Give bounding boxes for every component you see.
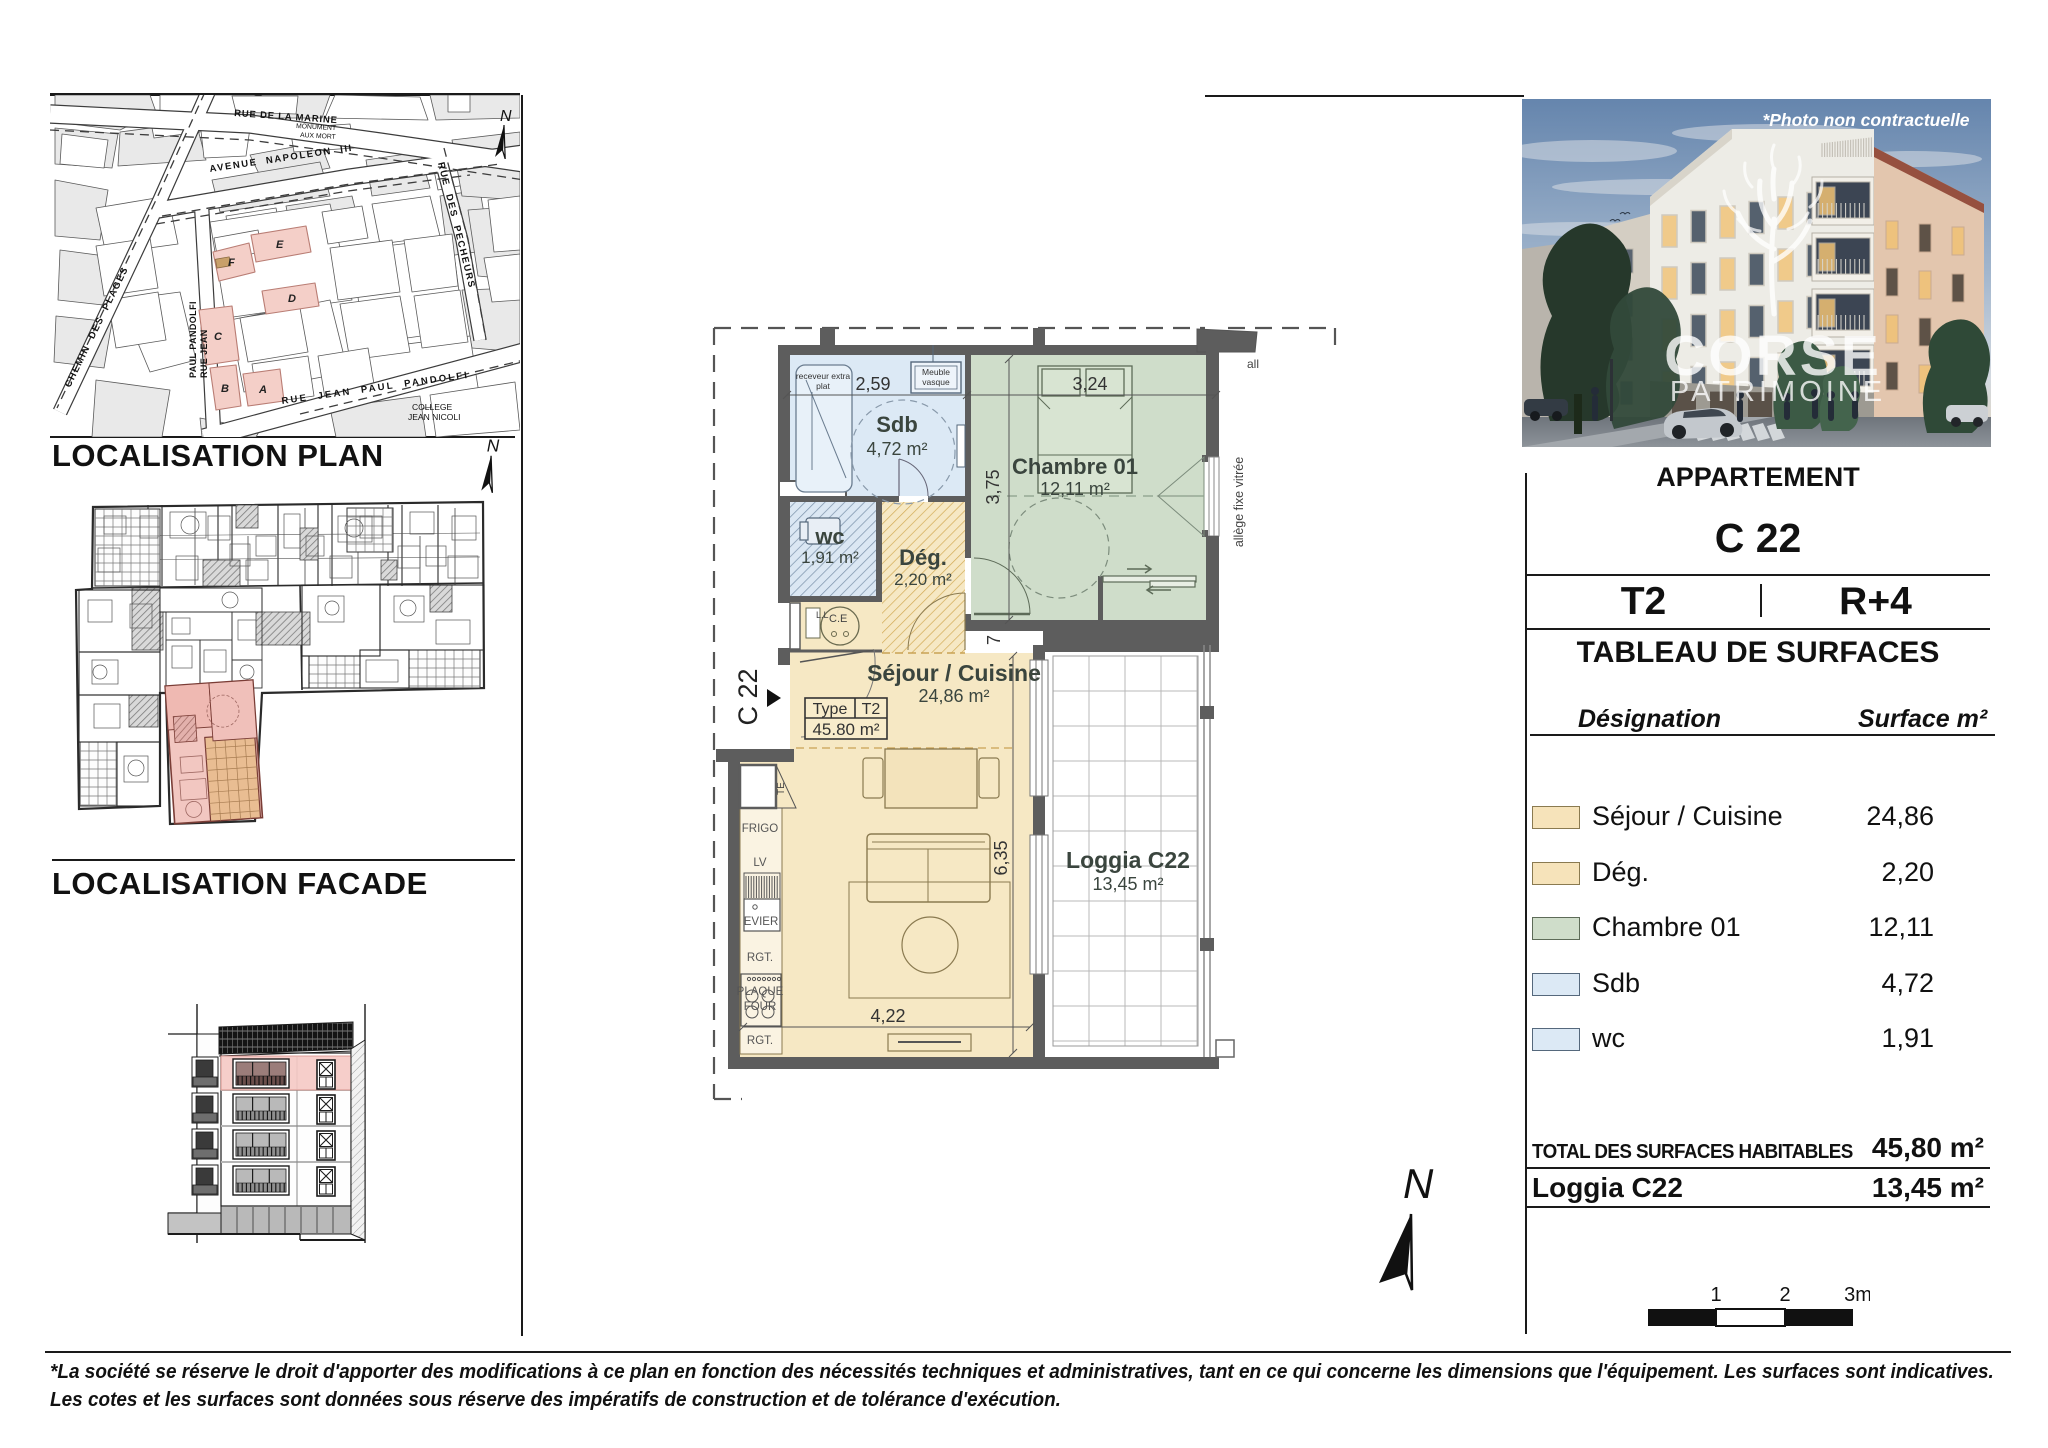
svg-text:3,24: 3,24 [1072,374,1107,394]
svg-text:PLAQUE: PLAQUE [737,986,784,998]
svg-text:F: F [228,257,235,269]
svg-text:45.80 m²: 45.80 m² [812,720,879,739]
svg-text:EVIER: EVIER [744,916,779,928]
svg-text:C.E: C.E [829,613,847,625]
svg-text:2,59: 2,59 [855,374,890,394]
svg-text:FOUR: FOUR [744,1001,777,1013]
svg-text:A: A [258,384,267,396]
svg-text:L.L: L.L [816,610,829,620]
svg-text:PAUL PANDOLFI: PAUL PANDOLFI [188,301,198,378]
svg-text:JEAN NICOLI: JEAN NICOLI [408,412,460,422]
svg-text:allège fixe vitrée: allège fixe vitrée [1232,457,1246,547]
svg-text:RGT.: RGT. [747,1035,773,1047]
svg-text:Chambre 01: Chambre 01 [1012,454,1138,479]
svg-text:Type: Type [813,701,848,718]
svg-text:3m: 3m [1844,1284,1870,1306]
svg-text:all: all [1247,357,1259,371]
svg-text:13,45 m²: 13,45 m² [1092,874,1163,894]
svg-text:RUE JEAN: RUE JEAN [199,329,209,378]
svg-text:Loggia C22: Loggia C22 [1066,847,1190,873]
svg-text:plat: plat [816,381,830,391]
svg-text:1: 1 [1710,1284,1721,1306]
svg-text:3,75: 3,75 [983,469,1003,504]
svg-text:FRIGO: FRIGO [742,823,778,835]
svg-text:*Photo non contractuelle: *Photo non contractuelle [1762,110,1969,130]
svg-text:E: E [276,239,284,251]
svg-text:Dég.: Dég. [899,545,947,570]
svg-text:PATRIMOINE: PATRIMOINE [1670,376,1886,408]
svg-text:B: B [221,383,229,395]
svg-text:Séjour / Cuisine: Séjour / Cuisine [867,660,1041,686]
svg-text:TE: TE [776,782,787,795]
svg-text:N: N [1403,1160,1434,1207]
svg-text:C 22: C 22 [733,668,763,725]
svg-text:24,86 m²: 24,86 m² [918,686,989,706]
svg-text:C: C [214,331,223,343]
svg-text:RGT.: RGT. [747,952,773,964]
svg-text:7: 7 [984,635,1004,645]
svg-text:6,35: 6,35 [991,840,1011,875]
svg-text:Meuble: Meuble [922,367,950,377]
svg-text:vasque: vasque [922,377,950,387]
svg-text:LV: LV [753,857,767,869]
svg-text:COLLEGE: COLLEGE [412,402,452,412]
svg-text:2,20 m²: 2,20 m² [894,570,952,589]
svg-text:2: 2 [1779,1284,1790,1306]
svg-text:T2: T2 [862,701,881,718]
svg-text:12,11 m²: 12,11 m² [1040,479,1110,499]
svg-text:N: N [500,108,512,125]
svg-text:wc: wc [814,524,844,549]
svg-text:N: N [487,436,500,455]
svg-text:D: D [288,293,296,305]
svg-text:1,91 m²: 1,91 m² [801,548,859,567]
svg-text:receveur extra: receveur extra [796,371,851,381]
svg-text:4,22: 4,22 [870,1006,905,1026]
svg-text:Sdb: Sdb [876,412,918,437]
svg-text:4,72 m²: 4,72 m² [866,439,927,459]
